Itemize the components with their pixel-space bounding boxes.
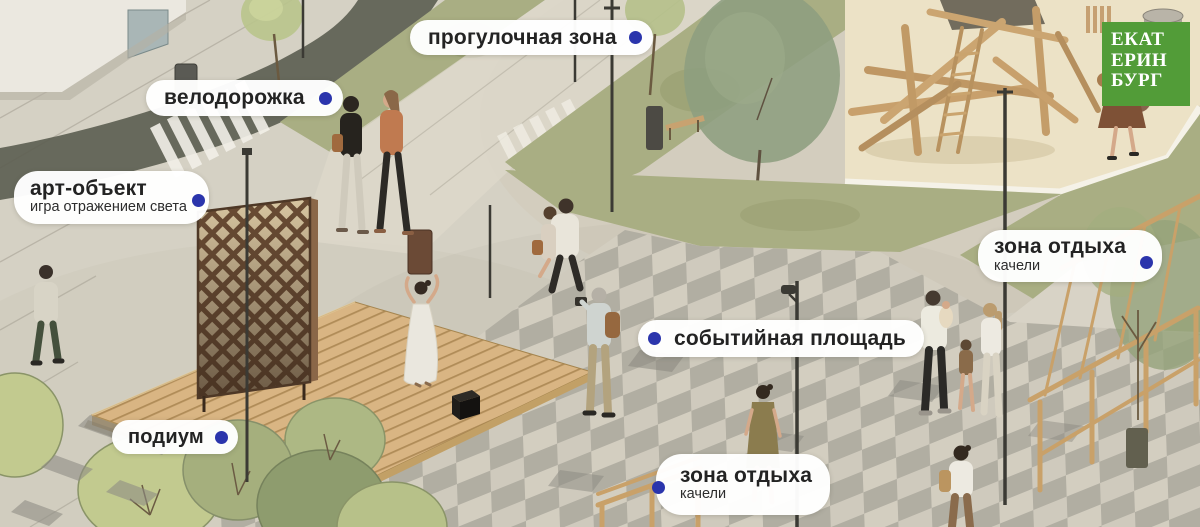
label-subtitle: качели	[680, 487, 812, 503]
dancer	[404, 276, 438, 386]
label-bike-path: велодорожка	[146, 80, 343, 116]
logo-line: ЕКАТ	[1111, 30, 1190, 51]
label-title: подиум	[128, 426, 204, 448]
art-object-panel	[198, 198, 318, 412]
masterplan-render: прогулочная зона велодорожка арт-объект …	[0, 0, 1200, 527]
label-title: прогулочная зона	[428, 26, 617, 50]
label-title: событийная площадь	[674, 327, 906, 351]
logo-line: БУРГ	[1111, 71, 1190, 92]
trash-bin	[1126, 428, 1148, 468]
label-title: велодорожка	[164, 86, 305, 110]
label-rest-zone-right: зона отдыха качели	[978, 230, 1162, 282]
marker-dot	[192, 194, 205, 207]
label-subtitle: игра отражением света	[30, 200, 187, 216]
label-title: зона отдыха	[994, 235, 1126, 259]
ekaterinburg-logo: ЕКАТ ЕРИН БУРГ	[1102, 22, 1190, 106]
label-rest-zone-bottom: зона отдыха качели	[656, 454, 830, 515]
marker-dot	[319, 92, 332, 105]
label-event-square: событийная площадь	[638, 320, 924, 357]
label-subtitle: качели	[994, 259, 1126, 275]
marker-dot	[629, 31, 642, 44]
logo-line: ЕРИН	[1111, 51, 1190, 72]
marker-dot	[648, 332, 661, 345]
marker-dot	[1140, 256, 1153, 269]
marker-dot	[652, 481, 665, 494]
label-podium: подиум	[112, 420, 238, 454]
marker-dot	[215, 431, 228, 444]
trash-bin	[408, 230, 432, 274]
label-walking-zone: прогулочная зона	[410, 20, 653, 55]
security-camera	[781, 285, 796, 294]
label-title: арт-объект	[30, 177, 187, 201]
label-art-object: арт-объект игра отражением света	[14, 171, 209, 224]
label-title: зона отдыха	[680, 464, 812, 488]
